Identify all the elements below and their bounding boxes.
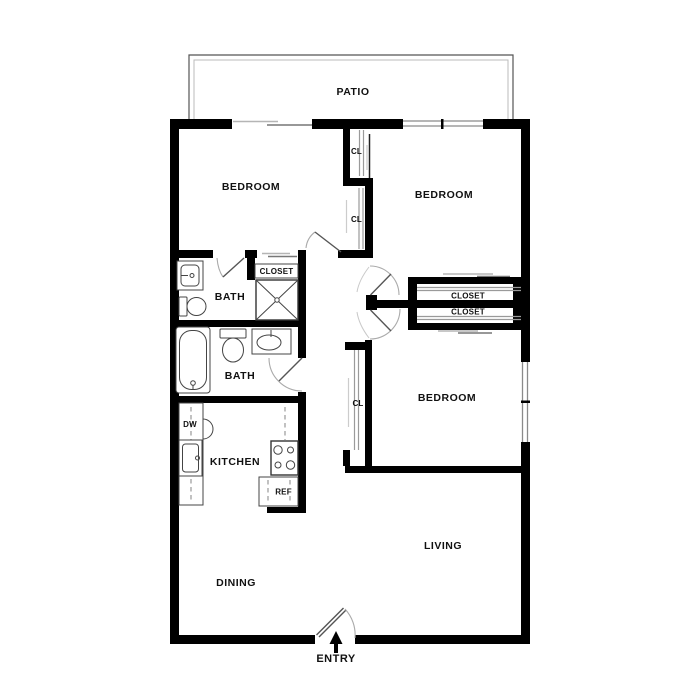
label-refrigerator: REF bbox=[275, 488, 292, 497]
wall-bath1-top bbox=[170, 250, 213, 258]
bath1-door-leaf bbox=[223, 258, 244, 277]
bath1-toilet-tank bbox=[179, 297, 187, 316]
bedroom1-door-arc bbox=[306, 232, 315, 248]
wall-closet-south bbox=[408, 323, 530, 330]
wall-linen-left bbox=[247, 256, 255, 280]
bedroom3-door-arc-minor bbox=[357, 312, 369, 338]
wall-bottom-left bbox=[170, 635, 315, 644]
wall-between-baths bbox=[170, 320, 306, 327]
wall-hall-west-lower bbox=[298, 392, 306, 513]
bath2-toilet-bowl bbox=[223, 338, 244, 362]
entry-door-arc bbox=[345, 609, 355, 638]
floor-plan: PATIO BEDROOM BEDROOM BEDROOM BATH BATH … bbox=[0, 0, 697, 697]
wall-closet-east-fill bbox=[513, 284, 521, 323]
wall-cl2-bottom bbox=[338, 250, 373, 258]
range bbox=[271, 441, 298, 475]
label-cl-bedroom3: CL bbox=[352, 399, 363, 408]
wall-bedroom3-west bbox=[365, 340, 372, 466]
entry-door-leaf-1 bbox=[317, 608, 344, 635]
label-bath-upper: BATH bbox=[215, 291, 245, 303]
bath2-toilet-tank bbox=[220, 329, 246, 338]
labels: PATIO BEDROOM BEDROOM BEDROOM BATH BATH … bbox=[183, 86, 485, 665]
label-dining: DINING bbox=[216, 577, 256, 589]
label-closet-bedroom3: CLOSET bbox=[451, 308, 485, 317]
label-bedroom-top-right: BEDROOM bbox=[415, 189, 473, 201]
entry-arrow-icon bbox=[330, 631, 343, 653]
label-closet-bedroom2: CLOSET bbox=[451, 292, 485, 301]
label-closet-linen: CLOSET bbox=[260, 267, 294, 276]
wall-closet-west-stub bbox=[408, 277, 417, 330]
label-bath-lower: BATH bbox=[225, 370, 255, 382]
label-bedroom-top-left: BEDROOM bbox=[222, 181, 280, 193]
bedroom2-window-mullion bbox=[441, 119, 444, 129]
bath2-door-leaf bbox=[279, 358, 302, 381]
bedroom1-door-leaf bbox=[315, 232, 341, 252]
label-patio: PATIO bbox=[336, 86, 369, 98]
wall-cl3-bottom-stub bbox=[343, 450, 350, 466]
label-bedroom-bottom-right: BEDROOM bbox=[418, 392, 476, 404]
wall-bottom-right bbox=[355, 635, 530, 644]
wall-kitchen-top bbox=[170, 396, 306, 403]
label-entry: ENTRY bbox=[316, 653, 356, 665]
wall-cl1-bottom bbox=[343, 178, 373, 186]
bedroom2-door-leaf bbox=[371, 274, 392, 295]
wall-closet-north bbox=[408, 277, 530, 284]
label-kitchen: KITCHEN bbox=[210, 456, 260, 468]
wall-hall-west-upper bbox=[298, 250, 306, 358]
entry-door-leaf-2 bbox=[319, 610, 346, 637]
label-living: LIVING bbox=[424, 540, 462, 552]
bath1-toilet-bowl bbox=[187, 298, 206, 316]
bedroom3-door-leaf bbox=[371, 310, 392, 331]
wall-cl2-east bbox=[365, 186, 373, 250]
bath1-door-arc bbox=[217, 258, 223, 277]
dishwasher-door-arc bbox=[203, 419, 213, 439]
bedroom3-window-mullion bbox=[521, 401, 530, 404]
wall-kitchen-bottom-stub bbox=[267, 507, 306, 513]
wall-cl3-top-stub bbox=[345, 342, 372, 350]
shower-drain bbox=[275, 298, 279, 302]
wall-closets-middle bbox=[370, 300, 530, 308]
wall-bedroom3-south bbox=[345, 466, 530, 473]
wall-top-left bbox=[170, 119, 232, 129]
wall-top-middle bbox=[312, 119, 403, 129]
floor-plan-drawing: PATIO BEDROOM BEDROOM BEDROOM BATH BATH … bbox=[0, 0, 697, 697]
bedroom2-door-arc-minor bbox=[357, 267, 369, 292]
label-dishwasher: DW bbox=[183, 420, 197, 429]
wall-cl1-west bbox=[343, 128, 350, 178]
label-cl-hall-lower: CL bbox=[351, 215, 362, 224]
label-cl-hall-upper: CL bbox=[351, 147, 362, 156]
